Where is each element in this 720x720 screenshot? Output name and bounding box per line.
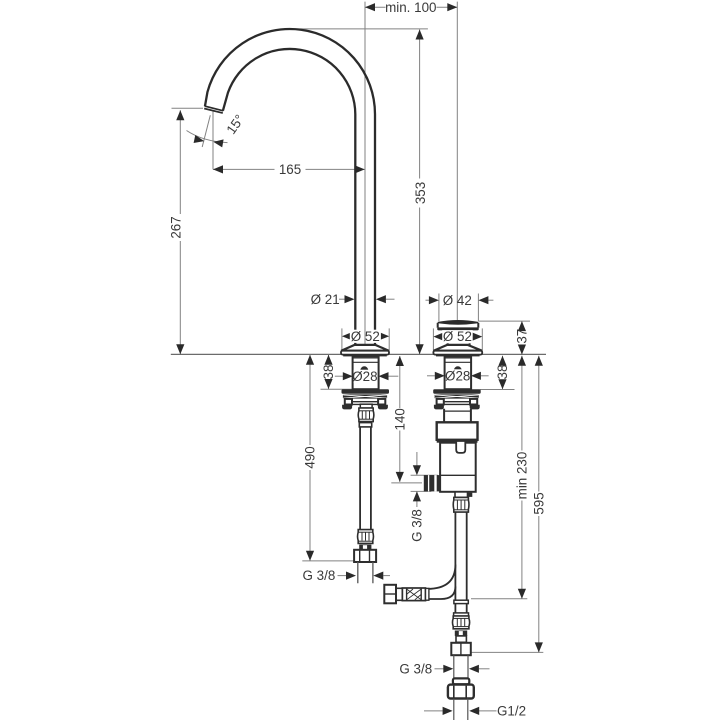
svg-text:38: 38: [495, 365, 510, 380]
svg-text:38: 38: [321, 365, 336, 380]
svg-text:Ø 52: Ø 52: [351, 329, 380, 344]
svg-text:G 3/8: G 3/8: [399, 661, 432, 676]
svg-text:Ø 21: Ø 21: [311, 292, 340, 307]
svg-text:140: 140: [392, 408, 407, 430]
svg-text:G1/2: G1/2: [497, 704, 526, 719]
svg-text:37: 37: [515, 329, 530, 344]
svg-text:Ø 42: Ø 42: [443, 293, 472, 308]
svg-text:min 230: min 230: [515, 452, 530, 500]
svg-text:267: 267: [168, 216, 183, 238]
svg-text:490: 490: [303, 446, 318, 468]
svg-text:G 3/8: G 3/8: [303, 568, 336, 583]
svg-text:Ø 52: Ø 52: [443, 329, 472, 344]
svg-text:min. 100: min. 100: [385, 0, 436, 15]
svg-text:165: 165: [279, 162, 301, 177]
svg-text:G 3/8: G 3/8: [409, 509, 424, 542]
svg-text:Ø28: Ø28: [445, 368, 470, 383]
svg-text:353: 353: [413, 182, 428, 204]
svg-text:Ø28: Ø28: [352, 369, 377, 384]
svg-text:595: 595: [531, 492, 546, 514]
